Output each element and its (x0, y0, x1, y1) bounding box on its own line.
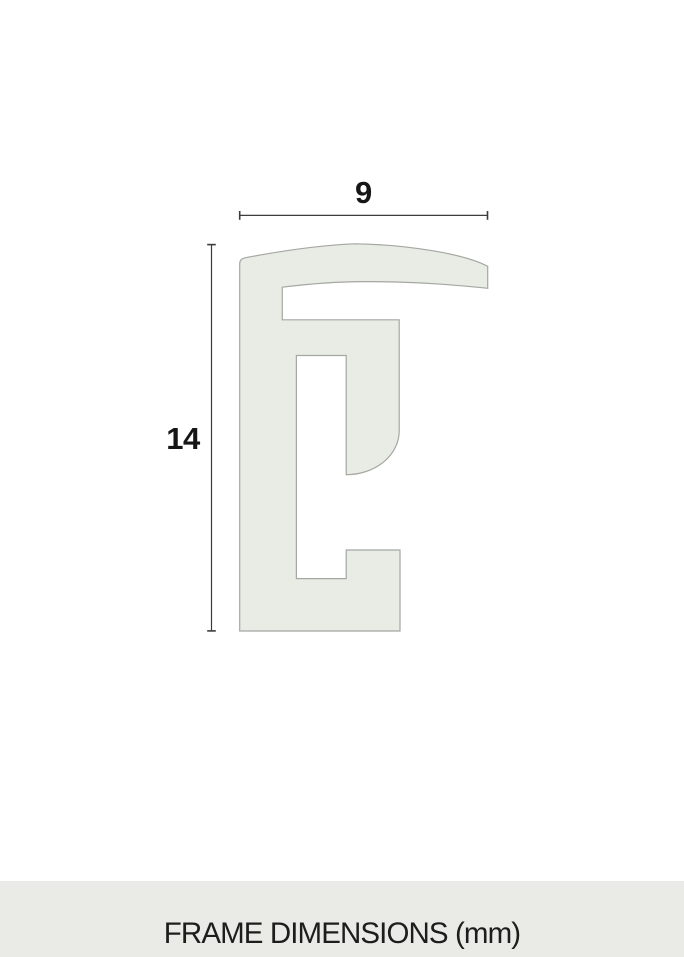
svg-text:14: 14 (166, 421, 201, 456)
svg-text:9: 9 (355, 175, 372, 210)
svg-text:FRAME DIMENSIONS (mm): FRAME DIMENSIONS (mm) (164, 917, 520, 950)
